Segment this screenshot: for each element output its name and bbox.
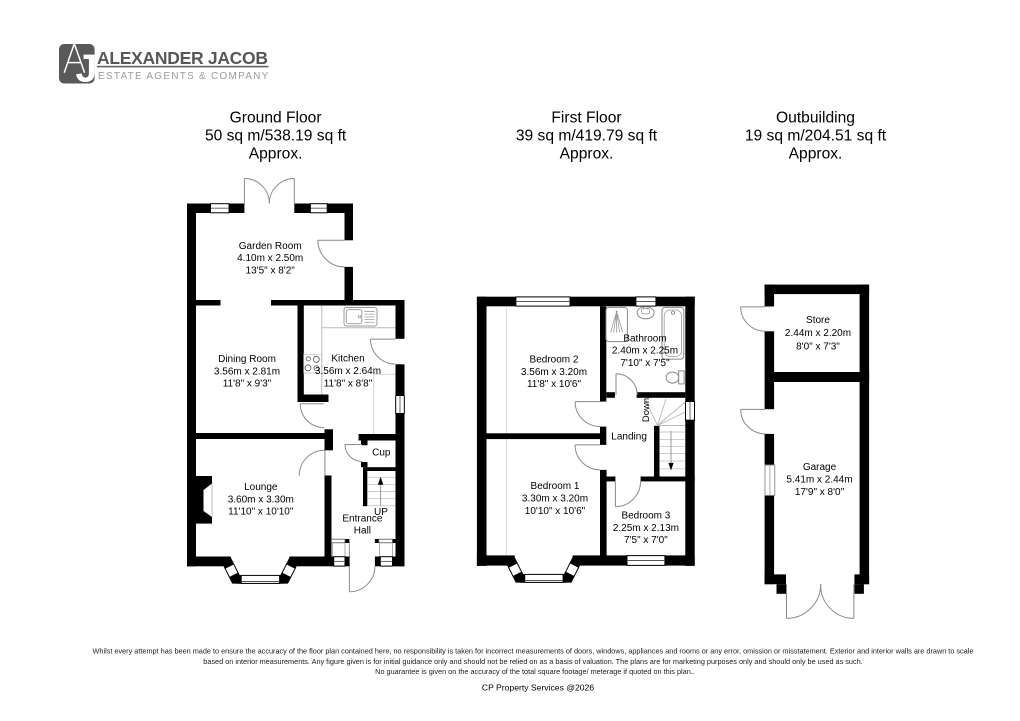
svg-text:Ground Floor: Ground Floor [230,110,322,127]
svg-text:Down: Down [641,398,652,422]
svg-text:5.41m x 2.44m: 5.41m x 2.44m [786,474,852,485]
svg-text:17'9" x 8'0": 17'9" x 8'0" [795,487,845,498]
svg-text:2.40m x 2.25m: 2.40m x 2.25m [612,346,678,357]
svg-text:Dining Room: Dining Room [218,354,276,365]
svg-text:13'5" x 8'2": 13'5" x 8'2" [246,265,296,276]
svg-text:Approx.: Approx. [560,146,614,163]
svg-text:3.60m x 3.30m: 3.60m x 3.30m [228,494,294,505]
svg-text:J: J [76,48,98,91]
svg-text:Bedroom 1: Bedroom 1 [531,481,580,492]
svg-text:Store: Store [806,315,830,326]
svg-text:Outbuilding: Outbuilding [776,110,855,127]
svg-text:8'0" x 7'3": 8'0" x 7'3" [796,341,840,352]
svg-text:CP Property Services @2026: CP Property Services @2026 [482,682,594,692]
svg-text:ESTATE AGENTS & COMPANY: ESTATE AGENTS & COMPANY [98,71,270,82]
svg-text:11'8" x 10'6": 11'8" x 10'6" [527,379,582,390]
svg-text:Cup: Cup [372,448,391,459]
svg-text:4.10m x 2.50m: 4.10m x 2.50m [237,253,303,264]
svg-text:39 sq m/419.79 sq ft: 39 sq m/419.79 sq ft [516,128,658,145]
svg-text:Kitchen: Kitchen [331,354,364,365]
svg-text:based on interior measurements: based on interior measurements. Any figu… [203,657,862,666]
svg-text:ALEXANDER JACOB: ALEXANDER JACOB [97,48,268,68]
svg-text:Landing: Landing [611,432,647,443]
svg-text:10'10" x 10'6": 10'10" x 10'6" [525,506,586,517]
svg-text:3.56m x 2.81m: 3.56m x 2.81m [214,366,280,377]
svg-text:Bedroom 2: Bedroom 2 [530,355,579,366]
svg-text:Entrance: Entrance [342,513,382,524]
svg-text:7'5" x 7'0": 7'5" x 7'0" [624,535,668,546]
svg-text:Lounge: Lounge [244,482,278,493]
svg-text:Approx.: Approx. [249,146,303,163]
svg-text:3.56m x 2.64m: 3.56m x 2.64m [315,366,381,377]
svg-text:11'8" x 9'3": 11'8" x 9'3" [223,379,272,390]
svg-text:Bathroom: Bathroom [623,333,666,344]
svg-text:7'10" x 7'5": 7'10" x 7'5" [620,358,670,369]
svg-text:Bedroom 3: Bedroom 3 [621,511,670,522]
svg-text:3.30m x 3.20m: 3.30m x 3.20m [522,494,588,505]
svg-text:11'8" x 8'8": 11'8" x 8'8" [324,378,373,389]
svg-text:No guarantee is given on the a: No guarantee is given on the accuracy of… [375,667,695,676]
svg-text:3.56m x 3.20m: 3.56m x 3.20m [521,367,587,378]
svg-text:19 sq m/204.51 sq ft: 19 sq m/204.51 sq ft [745,128,887,145]
svg-text:Garden Room: Garden Room [239,241,302,252]
svg-text:50 sq m/538.19 sq ft: 50 sq m/538.19 sq ft [205,128,347,145]
svg-text:Garage: Garage [803,462,837,473]
svg-text:Approx.: Approx. [789,146,843,163]
svg-text:2.44m x 2.20m: 2.44m x 2.20m [785,328,851,339]
svg-text:Whilst every attempt has been: Whilst every attempt has been made to en… [93,647,974,656]
svg-text:2.25m x 2.13m: 2.25m x 2.13m [613,523,679,534]
svg-text:First Floor: First Floor [551,110,621,127]
svg-text:11'10" x 10'10": 11'10" x 10'10" [228,507,294,518]
svg-text:Hall: Hall [354,526,371,537]
